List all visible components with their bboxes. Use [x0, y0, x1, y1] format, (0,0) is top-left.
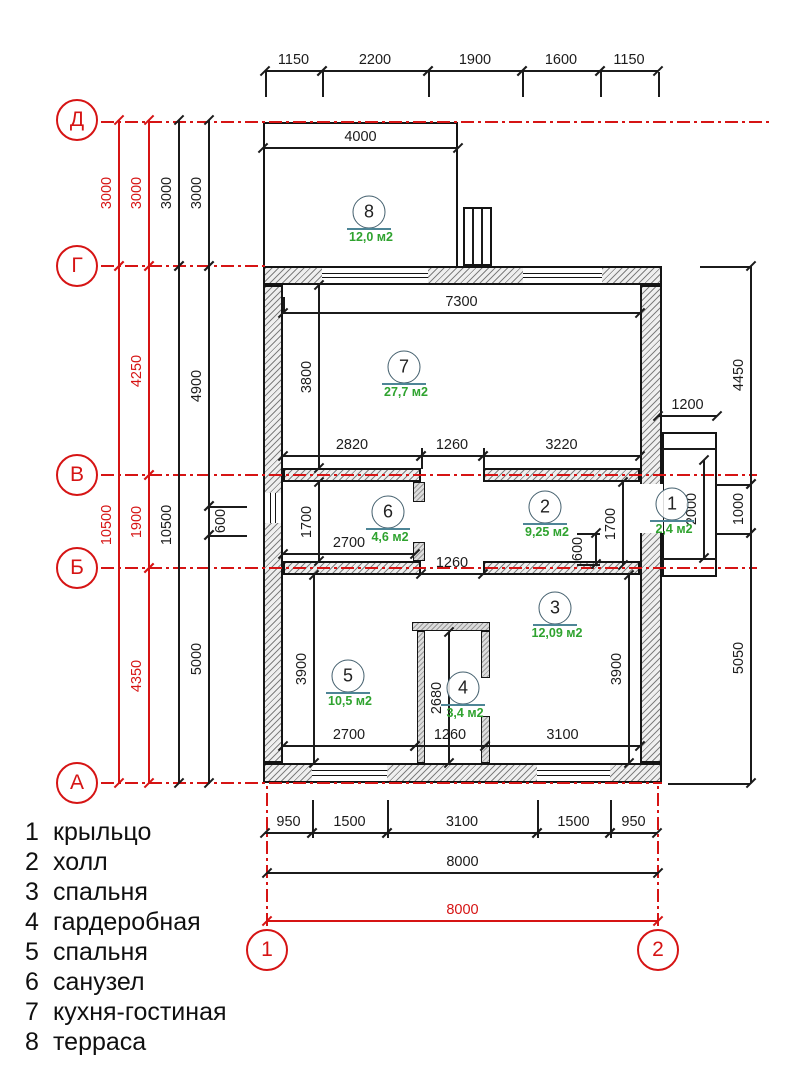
legend-item-number: 8: [25, 1028, 53, 1057]
dim-line: [118, 266, 120, 783]
legend-item-label: гардеробная: [53, 908, 201, 937]
dim-label: 4000: [344, 130, 376, 145]
room-number: 3: [550, 598, 560, 619]
dim-line: [428, 70, 522, 72]
dim-line: [283, 312, 640, 314]
dim-label: 3000: [100, 177, 115, 209]
dim-line: [750, 484, 752, 533]
dim-line: [595, 533, 597, 564]
dim-label: 8000: [446, 903, 478, 918]
dim-line: [178, 266, 180, 783]
wall: [413, 482, 425, 502]
dim-line: [658, 415, 717, 417]
legend-item-number: 3: [25, 878, 53, 907]
dim-line: [750, 533, 752, 783]
dim-line: [148, 266, 150, 475]
extension-line: [483, 448, 485, 469]
legend-item-number: 2: [25, 848, 53, 877]
dim-label: 1500: [333, 815, 365, 830]
window: [312, 763, 387, 783]
dim-label: 1700: [300, 505, 315, 537]
dim-label: 1260: [434, 728, 466, 743]
extension-line: [322, 72, 324, 97]
dim-line: [263, 147, 458, 149]
room-circle: 6: [372, 496, 405, 529]
centerline: [101, 567, 757, 569]
legend-item-label: санузел: [53, 968, 145, 997]
extension-line: [700, 266, 750, 268]
dim-label: 1150: [278, 53, 309, 68]
legend-item: 3спальня: [25, 878, 227, 908]
dim-label: 4450: [732, 359, 747, 391]
dim-label: 1700: [604, 507, 619, 539]
dim-line: [421, 455, 483, 457]
axis-circle: А: [56, 762, 98, 804]
dim-line: [703, 460, 705, 558]
extension-line: [600, 72, 602, 97]
dim-label: 5000: [190, 643, 205, 675]
dim-label: 2680: [430, 681, 445, 713]
axis-circle: В: [56, 454, 98, 496]
dim-label: 10500: [160, 504, 175, 544]
dim-line: [322, 70, 428, 72]
dim-line: [208, 506, 210, 535]
dim-line: [267, 920, 658, 922]
room-number: 5: [343, 666, 353, 687]
window: [263, 493, 283, 523]
legend: 1крыльцо2холл3спальня4гардеробная5спальн…: [25, 818, 227, 1058]
extension-line: [472, 209, 474, 264]
axis-label: В: [70, 463, 84, 487]
room-number: 2: [540, 497, 550, 518]
legend-item-label: спальня: [53, 878, 148, 907]
axis-label: Б: [70, 556, 84, 580]
wall: [263, 285, 283, 763]
dim-line: [208, 266, 210, 506]
dim-line: [318, 482, 320, 561]
dim-label: 4350: [130, 659, 145, 691]
centerline: [266, 786, 268, 926]
window: [537, 763, 610, 783]
dim-label: 3100: [446, 815, 478, 830]
dim-label: 3900: [295, 653, 310, 685]
room-area: 27,7 м2: [384, 386, 428, 399]
dim-line: [421, 573, 483, 575]
dim-label: 2820: [336, 438, 368, 453]
room-circle: 2: [529, 491, 562, 524]
extension-line: [662, 448, 717, 450]
dim-line: [283, 745, 415, 747]
legend-item-number: 4: [25, 908, 53, 937]
axis-label: 1: [261, 938, 273, 962]
dim-label: 4250: [130, 354, 145, 386]
extension-line: [522, 72, 524, 97]
room-area: 12,09 м2: [532, 627, 583, 640]
dim-label: 1200: [671, 398, 703, 413]
legend-item-label: крыльцо: [53, 818, 151, 847]
legend-item-label: терраса: [53, 1028, 146, 1057]
axis-label: А: [70, 771, 84, 795]
dim-line: [265, 70, 322, 72]
room-area: 3,4 м2: [446, 707, 483, 720]
extension-line: [208, 506, 247, 508]
room-number: 6: [383, 502, 393, 523]
room-area: 9,25 м2: [525, 526, 569, 539]
legend-item: 1крыльцо: [25, 818, 227, 848]
legend-item-number: 1: [25, 818, 53, 847]
dim-label: 2200: [359, 53, 391, 68]
dim-label: 1500: [557, 815, 589, 830]
dim-line: [148, 475, 150, 568]
centerline: [657, 786, 659, 926]
dim-label: 1150: [613, 53, 644, 68]
dim-line: [208, 120, 210, 266]
dim-line: [600, 70, 658, 72]
legend-item: 5спальня: [25, 938, 227, 968]
extension-line: [668, 783, 750, 785]
room-area: 2,4 м2: [655, 523, 692, 536]
extension-line: [716, 533, 750, 535]
dim-line: [265, 832, 312, 834]
room-number: 7: [399, 357, 409, 378]
centerline: [101, 265, 265, 267]
dim-label: 1260: [436, 438, 468, 453]
room-circle: 8: [353, 196, 386, 229]
axis-label: Г: [71, 254, 82, 278]
room-circle: 7: [388, 351, 421, 384]
dim-label: 1900: [130, 505, 145, 537]
extension-line: [265, 72, 267, 97]
legend-item-number: 7: [25, 998, 53, 1027]
room-number: 1: [667, 494, 677, 515]
dim-label: 3000: [190, 177, 205, 209]
window: [523, 266, 602, 285]
centerline: [101, 121, 770, 123]
room-number: 4: [458, 678, 468, 699]
chimney-outline: [463, 207, 492, 266]
dim-line: [628, 575, 630, 763]
dim-label: 3800: [300, 360, 315, 392]
legend-item: 2холл: [25, 848, 227, 878]
room-circle: 3: [539, 592, 572, 625]
legend-item-number: 6: [25, 968, 53, 997]
dim-line: [387, 832, 537, 834]
axis-circle: Б: [56, 547, 98, 589]
dim-label: 1900: [459, 53, 491, 68]
dim-line: [483, 455, 640, 457]
window: [322, 266, 428, 285]
axis-label: 2: [652, 938, 664, 962]
room-number: 8: [364, 202, 374, 223]
dim-line: [750, 266, 752, 484]
dim-line: [318, 285, 320, 468]
extension-line: [421, 448, 423, 469]
dim-label: 8000: [446, 855, 478, 870]
dim-label: 1000: [732, 492, 747, 524]
dim-line: [415, 745, 485, 747]
legend-item-label: спальня: [53, 938, 148, 967]
legend-item: 4гардеробная: [25, 908, 227, 938]
dim-line: [622, 482, 624, 565]
dim-label: 3100: [546, 728, 578, 743]
dim-line: [178, 120, 180, 266]
dim-line: [283, 455, 421, 457]
dim-label: 1260: [436, 556, 468, 571]
dim-label: 600: [571, 536, 586, 560]
extension-line: [208, 535, 247, 537]
dim-label: 2700: [333, 728, 365, 743]
dim-line: [283, 553, 415, 555]
legend-item-label: холл: [53, 848, 108, 877]
dim-line: [148, 568, 150, 783]
dim-label: 600: [214, 508, 229, 532]
legend-item: 7кухня-гостиная: [25, 998, 227, 1028]
extension-line: [428, 72, 430, 97]
centerline: [101, 474, 757, 476]
dim-label: 950: [276, 815, 300, 830]
extension-line: [662, 558, 717, 560]
dim-line: [313, 575, 315, 763]
dim-line: [118, 120, 120, 266]
dim-label: 3220: [545, 438, 577, 453]
dim-label: 950: [621, 815, 645, 830]
dim-label: 1600: [545, 53, 577, 68]
dim-line: [522, 70, 600, 72]
axis-circle: 2: [637, 929, 679, 971]
dim-label: 10500: [100, 504, 115, 544]
extension-line: [481, 209, 483, 264]
extension-line: [658, 72, 660, 97]
legend-item: 8терраса: [25, 1028, 227, 1058]
dim-label: 3900: [610, 653, 625, 685]
room-area: 12,0 м2: [349, 231, 393, 244]
extension-line: [716, 484, 750, 486]
dim-line: [312, 832, 387, 834]
room-area: 4,6 м2: [371, 531, 408, 544]
legend-item-label: кухня-гостиная: [53, 998, 227, 1027]
axis-circle: 1: [246, 929, 288, 971]
dim-label: 2700: [333, 536, 365, 551]
dim-label: 3000: [130, 177, 145, 209]
legend-item-number: 5: [25, 938, 53, 967]
dim-line: [537, 832, 610, 834]
centerline: [101, 782, 662, 784]
dim-label: 5050: [732, 642, 747, 674]
wall: [481, 631, 490, 678]
legend-item: 6санузел: [25, 968, 227, 998]
dim-line: [267, 872, 658, 874]
dim-line: [148, 120, 150, 266]
axis-circle: Г: [56, 245, 98, 287]
axis-label: Д: [70, 108, 84, 132]
dim-label: 4900: [190, 370, 205, 402]
room-area: 10,5 м2: [328, 695, 372, 708]
room-circle: 5: [332, 660, 365, 693]
room-circle: 1: [656, 488, 689, 521]
dim-line: [208, 535, 210, 783]
axis-circle: Д: [56, 99, 98, 141]
room-circle: 4: [447, 672, 480, 705]
dim-line: [610, 832, 657, 834]
dim-label: 7300: [445, 295, 477, 310]
dim-label: 3000: [160, 177, 175, 209]
floor-plan: 1крыльцо2холл3спальня4гардеробная5спальн…: [0, 0, 796, 1080]
dim-line: [485, 745, 640, 747]
